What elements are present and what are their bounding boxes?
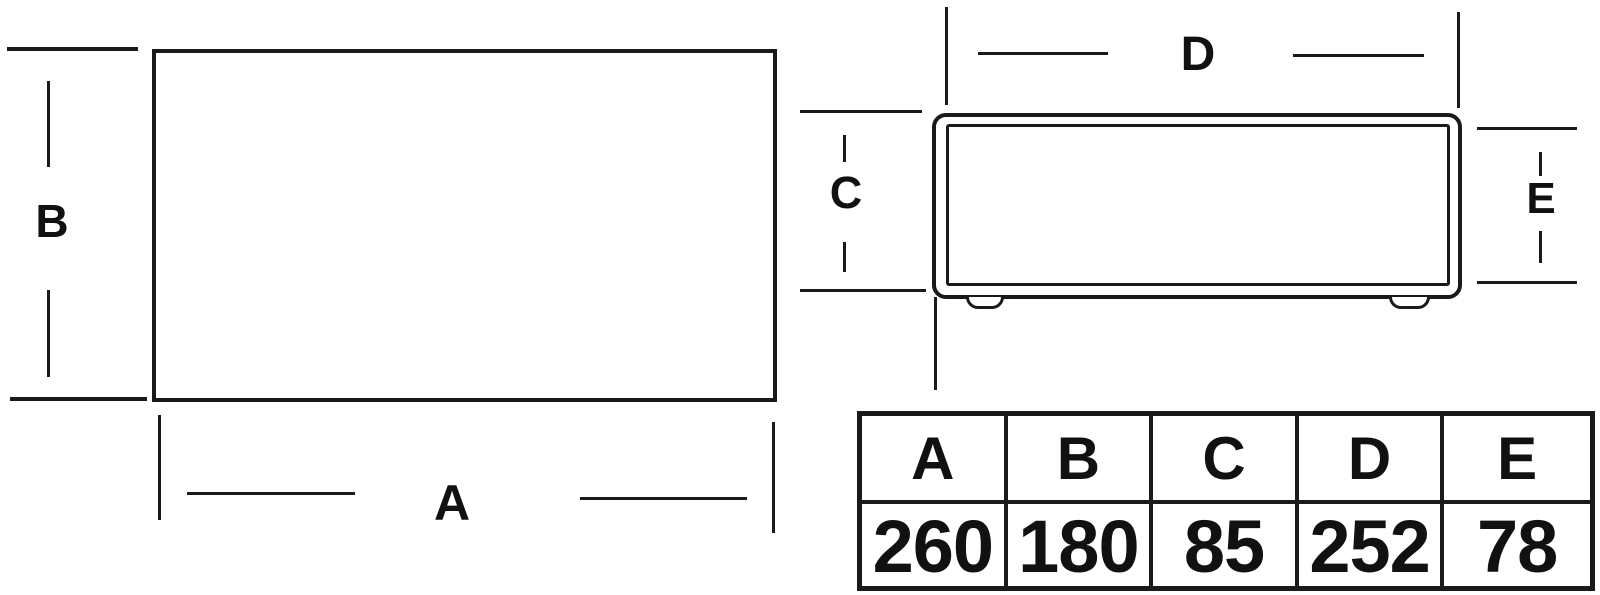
top-view-rectangle <box>152 49 777 402</box>
side-view-drop-line <box>934 297 937 390</box>
side-view-foot-right <box>1389 297 1430 309</box>
dimension-drawing: B A D C E A B C D E 260 180 85 252 78 <box>0 0 1600 595</box>
table-header-a: A <box>862 416 1008 504</box>
table-value-d: 252 <box>1299 504 1445 589</box>
dim-a-line-right <box>580 497 747 500</box>
dim-b-line-lower <box>47 290 50 377</box>
table-value-e: 78 <box>1444 504 1590 589</box>
dim-e-line-upper <box>1539 152 1542 176</box>
dim-b-extension-bottom <box>10 397 147 401</box>
dim-label-b: B <box>12 197 92 245</box>
table-value-b: 180 <box>1008 504 1154 589</box>
dim-e-line-lower <box>1539 231 1542 263</box>
dim-a-extension-left <box>158 415 161 520</box>
dim-b-line-upper <box>47 81 50 167</box>
dim-c-line-lower <box>843 242 846 272</box>
dim-e-extension-top <box>1477 127 1577 130</box>
dim-d-extension-right <box>1457 12 1460 108</box>
side-view-foot-left <box>966 297 1004 309</box>
dim-b-extension-top <box>7 47 138 51</box>
table-header-d: D <box>1299 416 1445 504</box>
dim-d-extension-left <box>945 7 948 105</box>
dim-c-extension-top <box>800 110 922 113</box>
dimensions-table: A B C D E 260 180 85 252 78 <box>857 411 1595 591</box>
table-header-e: E <box>1444 416 1590 504</box>
dim-d-line-right <box>1293 54 1424 57</box>
dim-c-line-upper <box>843 135 846 162</box>
dim-a-extension-right <box>772 422 775 533</box>
dim-label-a: A <box>412 477 492 530</box>
table-value-c: 85 <box>1153 504 1299 589</box>
table-header-b: B <box>1008 416 1154 504</box>
dim-label-c: C <box>806 169 886 216</box>
table-header-c: C <box>1153 416 1299 504</box>
dim-a-line-left <box>187 492 355 495</box>
dim-label-e: E <box>1501 176 1581 222</box>
table-value-a: 260 <box>862 504 1008 589</box>
side-view-inner-panel <box>946 124 1450 286</box>
dim-e-extension-bottom <box>1477 281 1577 284</box>
dim-d-line-left <box>978 52 1108 55</box>
dim-c-extension-bottom <box>800 289 926 292</box>
dim-label-d: D <box>1158 30 1238 80</box>
